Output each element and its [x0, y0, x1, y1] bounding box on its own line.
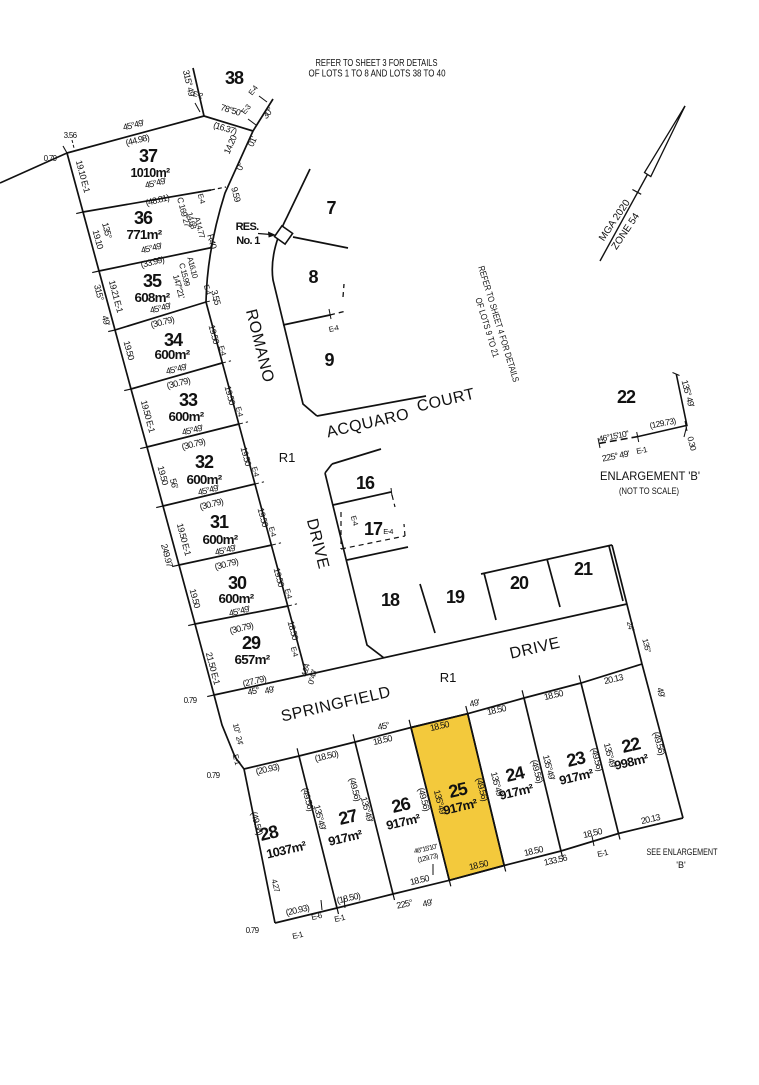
- svg-text:16: 16: [356, 473, 375, 493]
- svg-text:38: 38: [225, 68, 244, 88]
- svg-text:8: 8: [308, 267, 318, 287]
- svg-text:22: 22: [617, 387, 636, 407]
- svg-text:RES.: RES.: [236, 221, 260, 233]
- svg-text:32: 32: [195, 452, 214, 472]
- svg-text:17: 17: [364, 519, 383, 539]
- svg-text:600m²: 600m²: [169, 410, 205, 424]
- svg-text:20: 20: [510, 573, 529, 593]
- svg-text:3.56: 3.56: [64, 131, 78, 140]
- svg-text:0.79: 0.79: [246, 926, 260, 935]
- svg-text:600m²: 600m²: [155, 348, 191, 362]
- svg-text:0.79: 0.79: [184, 696, 198, 705]
- svg-text:E-4: E-4: [383, 527, 393, 536]
- svg-text:'B': 'B': [676, 860, 686, 870]
- svg-text:19: 19: [446, 587, 465, 607]
- svg-text:34: 34: [164, 330, 183, 350]
- svg-text:(NOT TO SCALE): (NOT TO SCALE): [619, 486, 679, 496]
- svg-text:18: 18: [381, 590, 400, 610]
- svg-text:7: 7: [326, 198, 336, 218]
- svg-text:9: 9: [324, 350, 334, 370]
- svg-text:REFER TO SHEET 3 FOR DETAILS: REFER TO SHEET 3 FOR DETAILS: [316, 58, 438, 69]
- svg-text:31: 31: [210, 512, 229, 532]
- svg-text:35: 35: [143, 271, 162, 291]
- svg-text:36: 36: [134, 208, 153, 228]
- svg-text:SEE ENLARGEMENT: SEE ENLARGEMENT: [647, 847, 718, 857]
- svg-text:600m²: 600m²: [219, 592, 255, 606]
- svg-text:0.79: 0.79: [44, 154, 58, 163]
- svg-text:No. 1: No. 1: [236, 235, 260, 247]
- svg-text:29: 29: [242, 633, 261, 653]
- svg-text:33: 33: [179, 390, 198, 410]
- svg-text:R1: R1: [440, 670, 457, 685]
- svg-text:657m²: 657m²: [235, 653, 271, 667]
- svg-text:30: 30: [228, 573, 247, 593]
- svg-text:OF LOTS 1 TO 8 AND LOTS 38 TO: OF LOTS 1 TO 8 AND LOTS 38 TO 40: [309, 69, 446, 80]
- svg-text:37: 37: [139, 146, 158, 166]
- svg-text:ENLARGEMENT 'B': ENLARGEMENT 'B': [600, 469, 700, 483]
- svg-text:771m²: 771m²: [127, 228, 163, 242]
- svg-text:0.79: 0.79: [207, 771, 221, 780]
- svg-text:R1: R1: [279, 450, 296, 465]
- svg-text:21: 21: [574, 559, 593, 579]
